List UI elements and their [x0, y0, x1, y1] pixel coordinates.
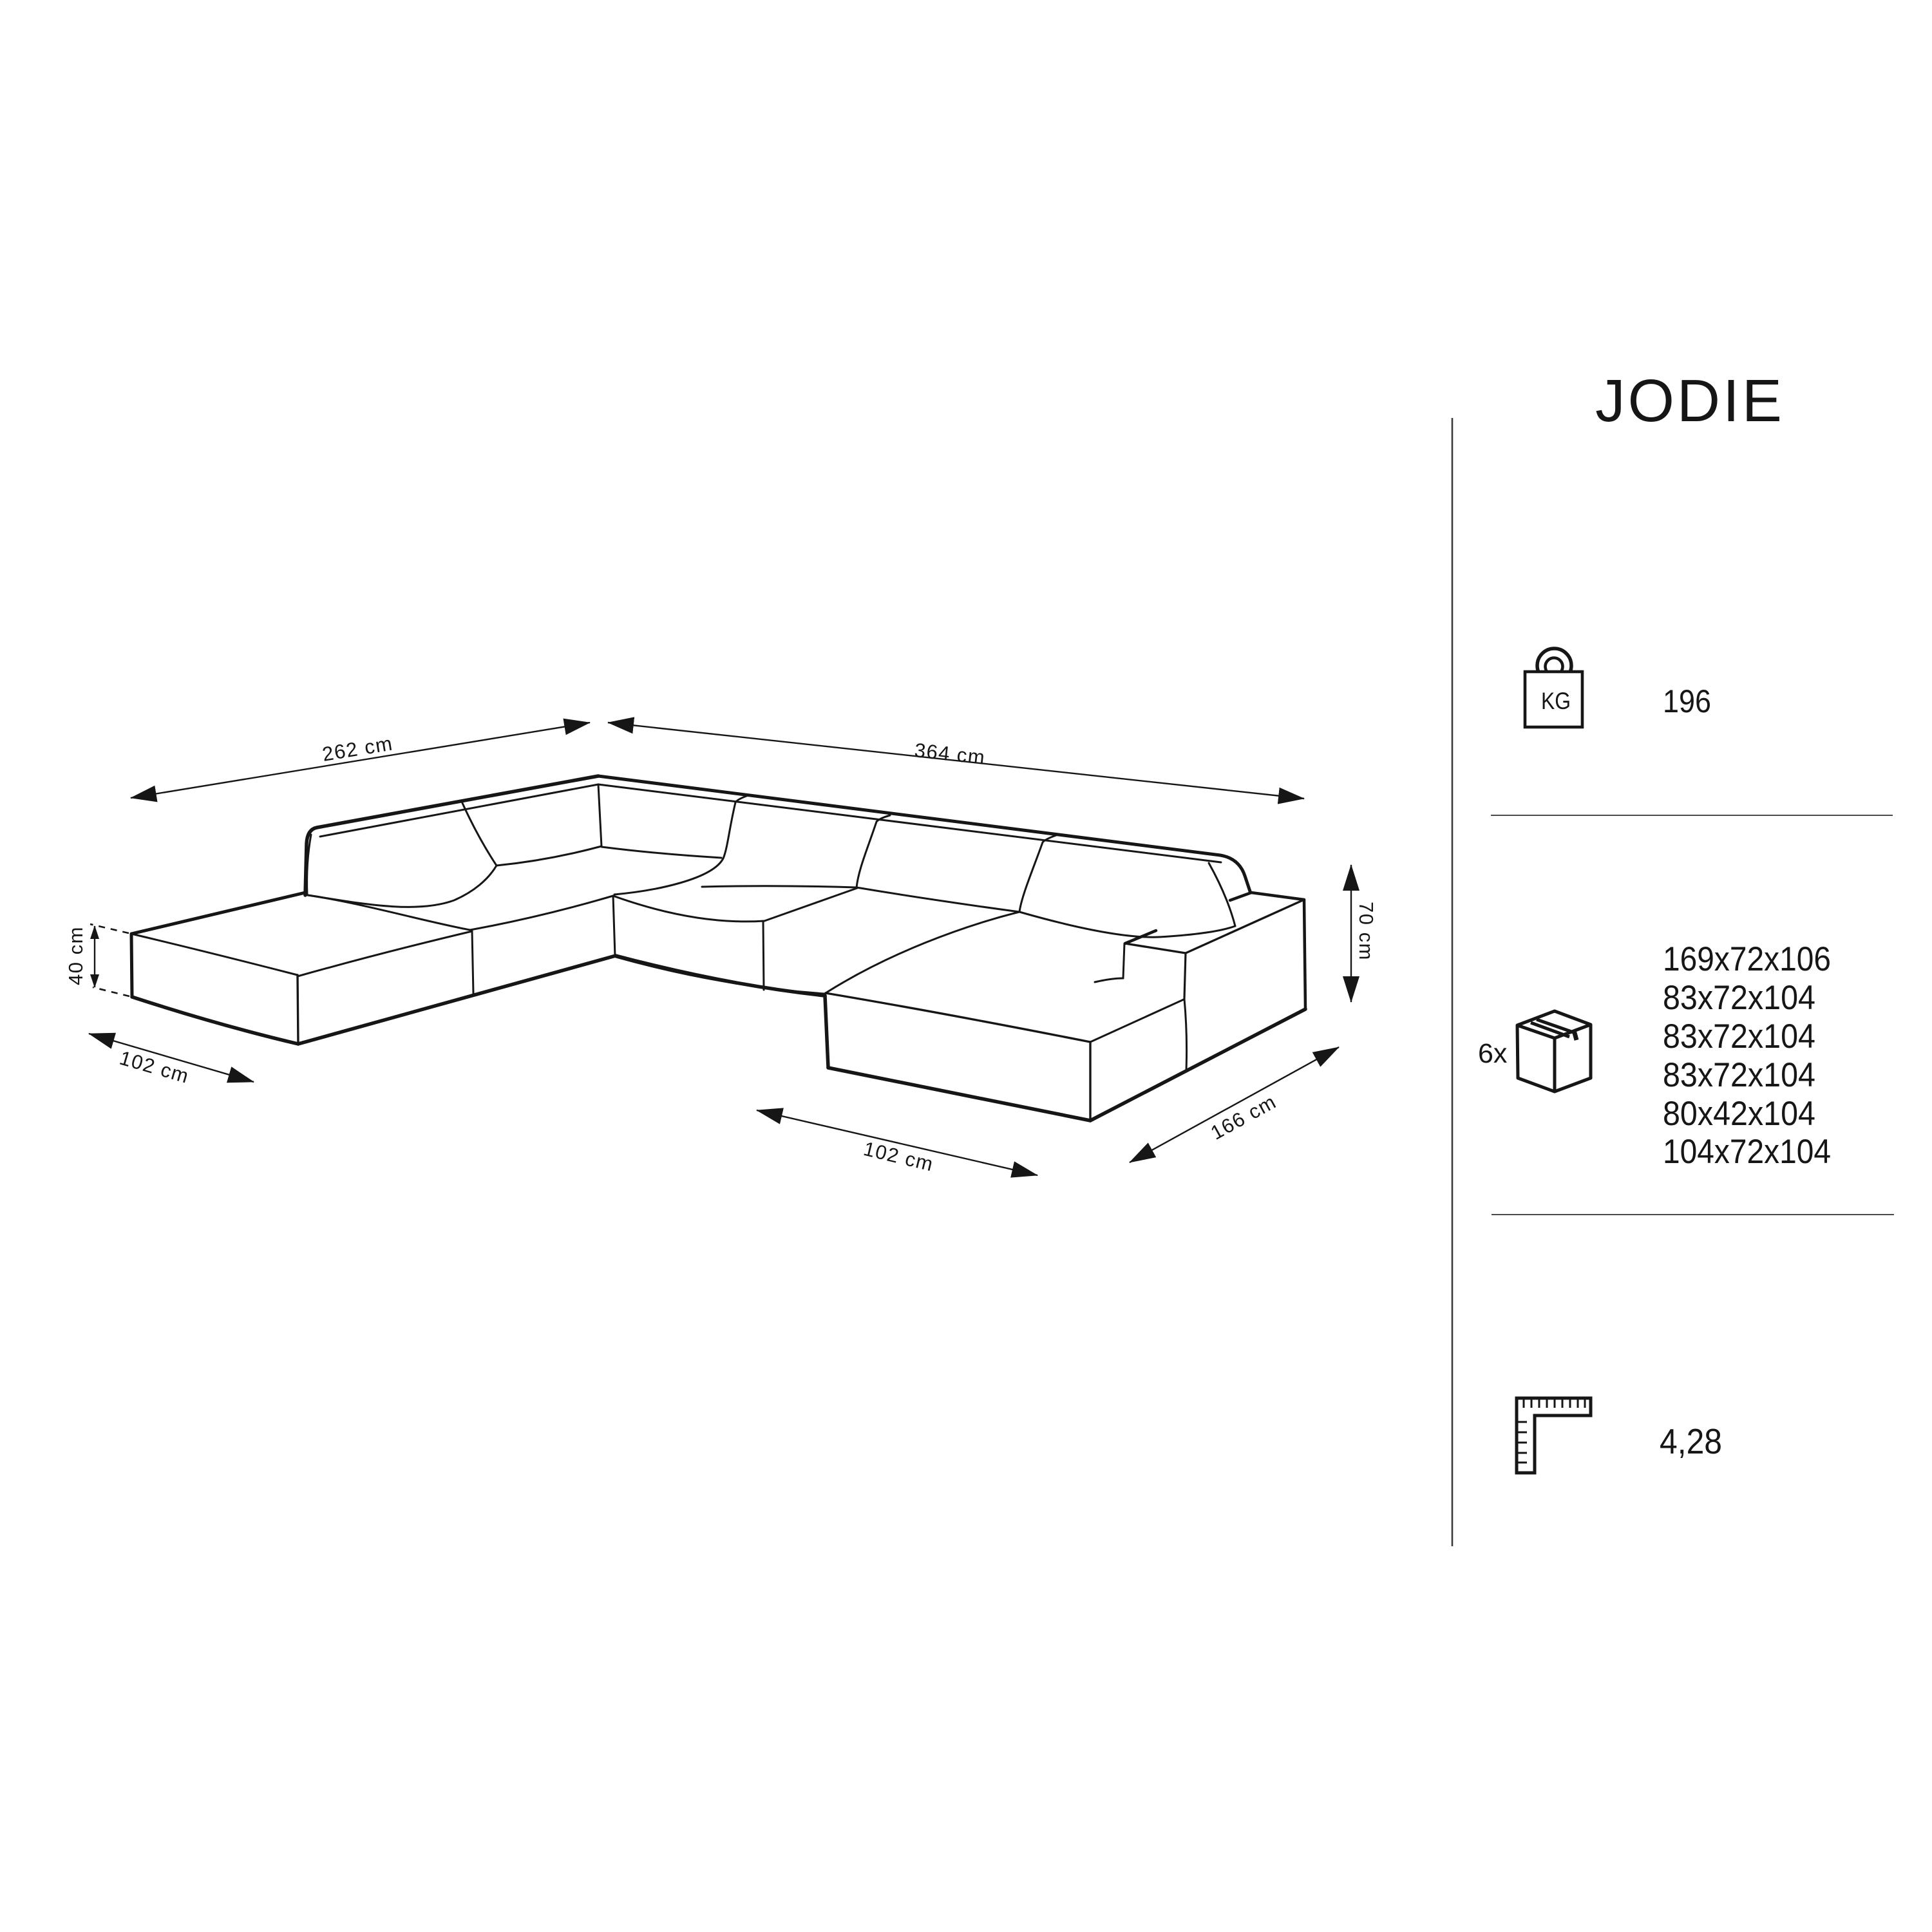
svg-text:4,28: 4,28 [1660, 1421, 1722, 1461]
svg-text:80x42x104: 80x42x104 [1663, 1095, 1815, 1133]
svg-text:6x: 6x [1478, 1038, 1508, 1069]
svg-text:KG: KG [1541, 688, 1571, 714]
svg-text:83x72x104: 83x72x104 [1663, 979, 1815, 1017]
svg-text:104x72x104: 104x72x104 [1663, 1133, 1831, 1171]
svg-text:83x72x104: 83x72x104 [1663, 1018, 1815, 1056]
svg-text:83x72x104: 83x72x104 [1663, 1056, 1815, 1094]
svg-text:JODIE: JODIE [1595, 367, 1785, 434]
svg-text:70 cm: 70 cm [1355, 902, 1378, 961]
svg-text:169x72x106: 169x72x106 [1663, 940, 1831, 978]
svg-text:40 cm: 40 cm [64, 926, 87, 985]
svg-text:196: 196 [1663, 683, 1711, 719]
